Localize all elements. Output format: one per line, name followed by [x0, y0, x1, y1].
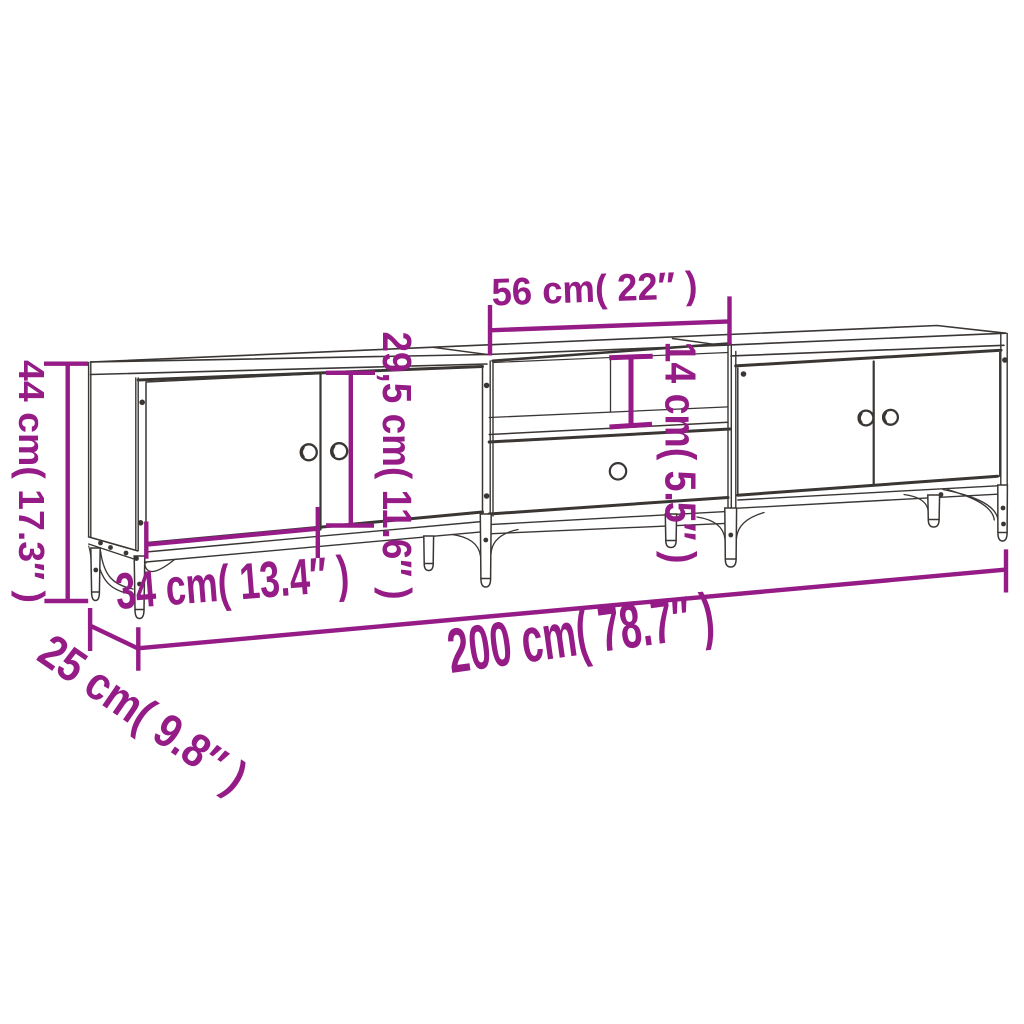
svg-text:29,5 cm( 11.6″ ): 29,5 cm( 11.6″ ): [374, 332, 420, 600]
svg-text:14 cm( 5.5″ ): 14 cm( 5.5″ ): [655, 342, 703, 564]
svg-text:44 cm( 17.3″ ): 44 cm( 17.3″ ): [11, 360, 52, 603]
svg-text:56 cm( 22″ ): 56 cm( 22″ ): [491, 264, 698, 315]
